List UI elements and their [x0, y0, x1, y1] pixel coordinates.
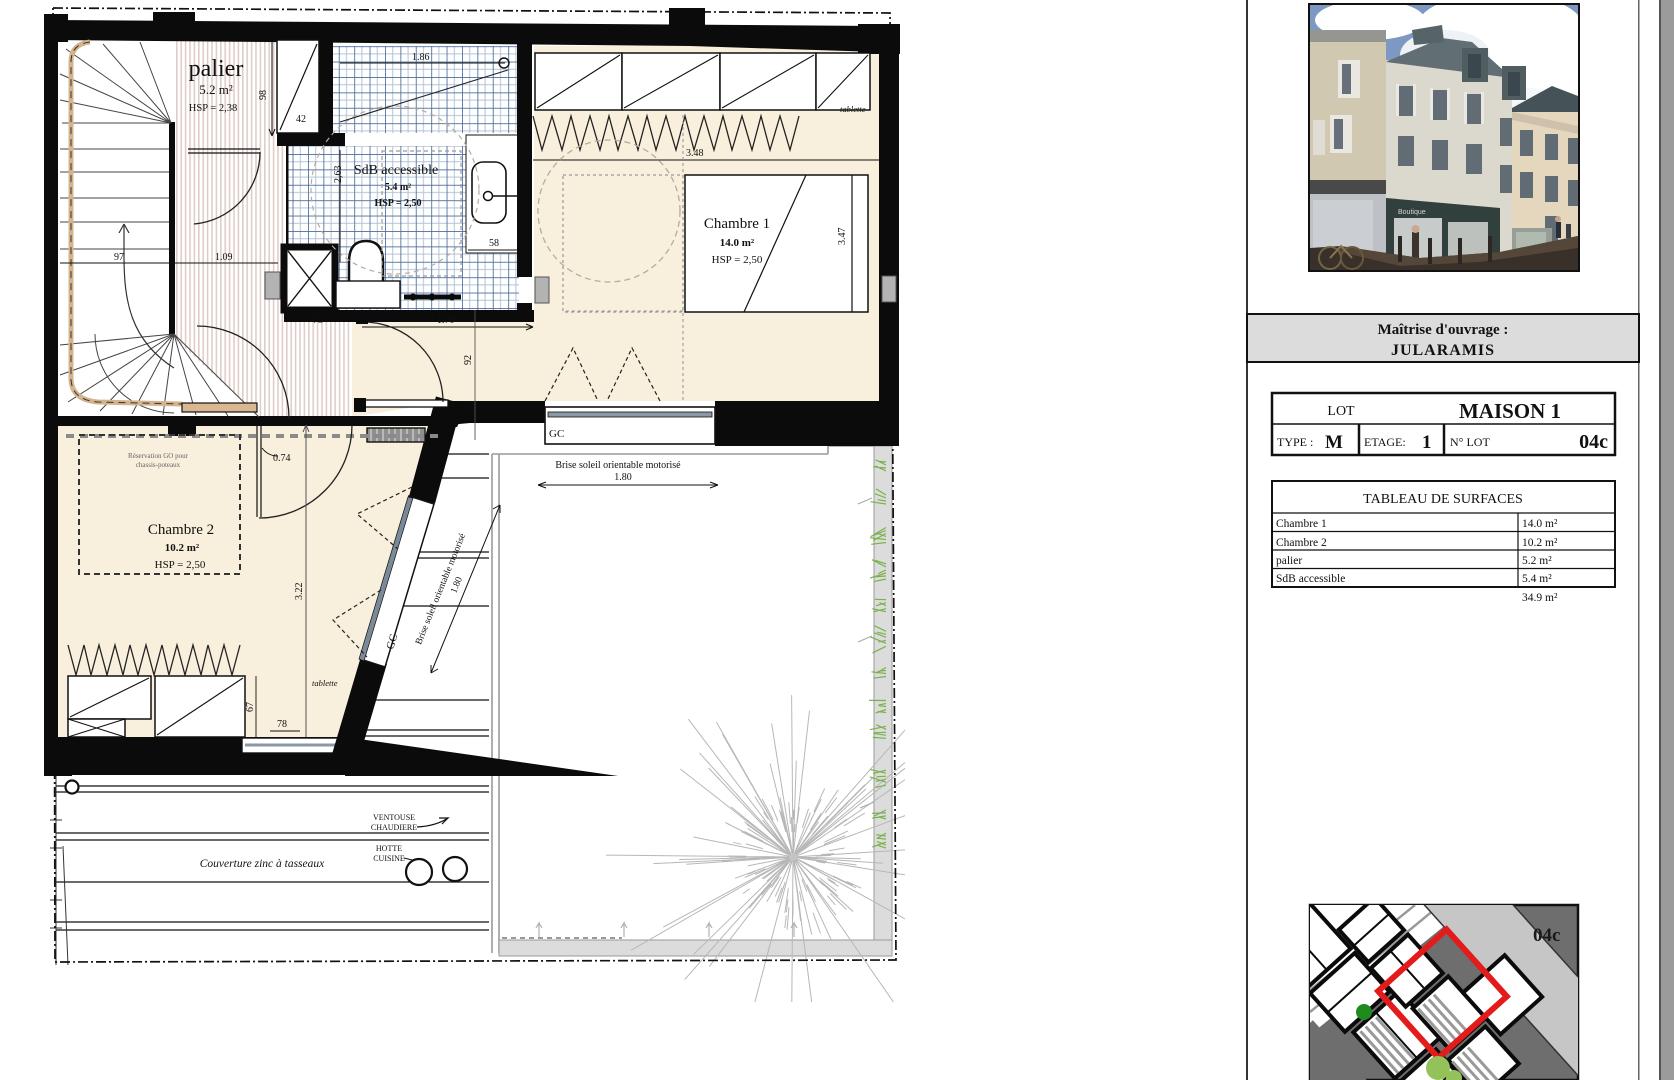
svg-text:Chambre 1: Chambre 1	[704, 216, 770, 232]
svg-text:92: 92	[463, 355, 474, 365]
svg-text:10.2 m²: 10.2 m²	[165, 542, 200, 554]
svg-text:SdB accessible: SdB accessible	[1276, 573, 1345, 585]
svg-text:5.2 m²: 5.2 m²	[1522, 555, 1552, 567]
svg-text:42: 42	[296, 114, 306, 125]
svg-text:5.2 m²: 5.2 m²	[199, 82, 233, 97]
svg-text:chassis-poteaux: chassis-poteaux	[136, 461, 181, 469]
svg-text:HOTTE: HOTTE	[376, 844, 402, 853]
svg-text:67: 67	[245, 702, 256, 712]
svg-text:TYPE :: TYPE :	[1277, 435, 1313, 449]
svg-text:HSP = 2,50: HSP = 2,50	[155, 559, 206, 571]
svg-text:1: 1	[1422, 432, 1432, 453]
svg-text:HSP = 2,50: HSP = 2,50	[374, 198, 421, 209]
svg-text:58: 58	[489, 238, 499, 249]
svg-text:TABLEAU DE SURFACES: TABLEAU DE SURFACES	[1363, 492, 1523, 507]
svg-text:1.09: 1.09	[215, 252, 233, 263]
svg-text:98: 98	[258, 90, 269, 100]
svg-text:5.4 m²: 5.4 m²	[385, 182, 411, 193]
svg-text:1.70: 1.70	[437, 315, 455, 326]
svg-text:GC: GC	[549, 428, 564, 440]
svg-text:tablette: tablette	[840, 104, 866, 114]
svg-text:1.80: 1.80	[614, 472, 632, 483]
svg-text:LOT: LOT	[1327, 404, 1355, 419]
svg-text:Chambre 2: Chambre 2	[148, 522, 214, 538]
svg-text:N° LOT: N° LOT	[1450, 435, 1490, 449]
svg-text:HSP = 2,38: HSP = 2,38	[189, 103, 237, 114]
svg-text:Réservation GO pour: Réservation GO pour	[128, 452, 189, 460]
svg-text:5.4 m²: 5.4 m²	[1522, 573, 1552, 585]
svg-text:SdB accessible: SdB accessible	[354, 163, 438, 178]
svg-text:ETAGE:: ETAGE:	[1364, 435, 1406, 449]
svg-text:97: 97	[114, 252, 124, 263]
svg-text:tablette: tablette	[312, 678, 338, 688]
svg-text:Maîtrise d'ouvrage :: Maîtrise d'ouvrage :	[1378, 322, 1509, 338]
svg-text:0.74: 0.74	[273, 453, 291, 464]
svg-text:75: 75	[313, 315, 323, 326]
svg-text:HSP = 2,50: HSP = 2,50	[712, 254, 763, 266]
svg-text:palier: palier	[189, 56, 244, 82]
svg-text:1.86: 1.86	[412, 52, 430, 63]
svg-text:palier: palier	[1276, 555, 1302, 567]
svg-text:78: 78	[277, 719, 287, 730]
svg-text:2,63: 2,63	[333, 166, 344, 184]
svg-text:34.9 m²: 34.9 m²	[1522, 592, 1558, 604]
svg-text:14.0 m²: 14.0 m²	[1522, 518, 1558, 530]
svg-text:3.47: 3.47	[837, 228, 848, 246]
svg-text:JULARAMIS: JULARAMIS	[1391, 342, 1495, 359]
svg-text:Chambre 1: Chambre 1	[1276, 518, 1327, 530]
svg-text:CUISINE: CUISINE	[373, 854, 405, 863]
svg-text:3.48: 3.48	[686, 148, 704, 159]
svg-text:Chambre 2: Chambre 2	[1276, 537, 1327, 549]
svg-text:CHAUDIERE: CHAUDIERE	[371, 823, 417, 832]
svg-text:04c: 04c	[1533, 925, 1560, 946]
svg-text:M: M	[1325, 432, 1343, 453]
svg-text:Brise soleil orientable motori: Brise soleil orientable motorisé	[555, 460, 681, 471]
svg-text:MAISON 1: MAISON 1	[1459, 399, 1561, 423]
svg-text:3.22: 3.22	[294, 583, 305, 601]
svg-text:VENTOUSE: VENTOUSE	[373, 813, 415, 822]
svg-text:04c: 04c	[1579, 431, 1608, 453]
svg-text:Couverture zinc à tasseaux: Couverture zinc à tasseaux	[200, 858, 325, 870]
svg-text:10.2 m²: 10.2 m²	[1522, 537, 1558, 549]
svg-text:14.0 m²: 14.0 m²	[720, 237, 755, 249]
